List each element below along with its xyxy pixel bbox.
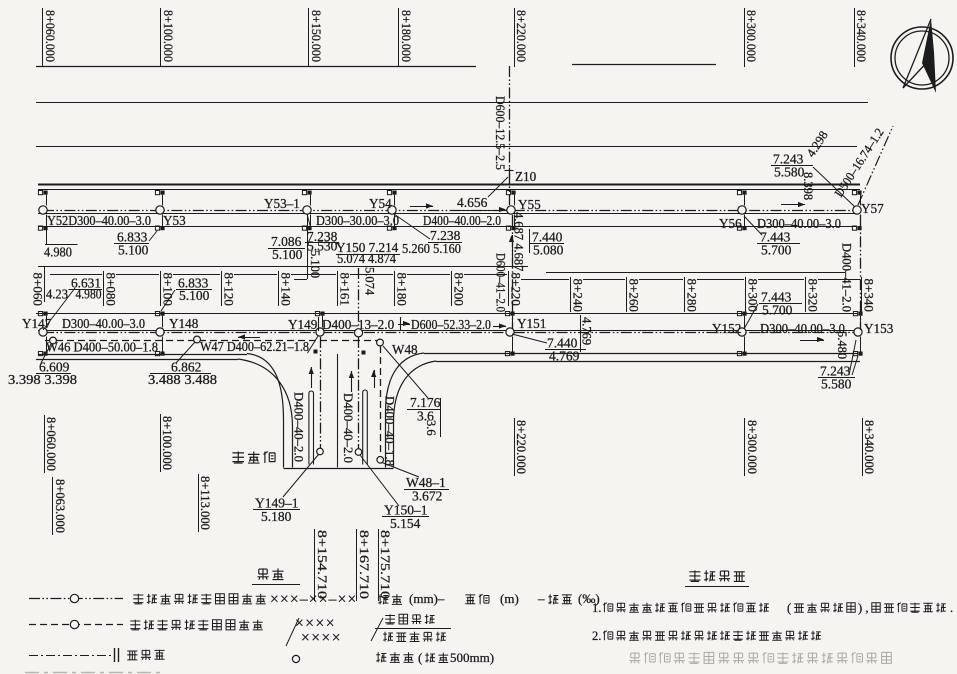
svg-text:D400–41–2.0: D400–41–2.0 <box>840 243 854 312</box>
svg-text:8+280: 8+280 <box>684 279 699 312</box>
svg-text:8+340: 8+340 <box>861 279 876 312</box>
svg-text:5.100: 5.100 <box>118 243 149 258</box>
svg-text:8+220: 8+220 <box>508 273 523 306</box>
svg-text:W46 D400–50.00–1.8: W46 D400–50.00–1.8 <box>46 340 158 355</box>
svg-text:4.23: 4.23 <box>46 287 68 302</box>
svg-text:4.769: 4.769 <box>549 349 580 364</box>
svg-text:D400–13–2.0: D400–13–2.0 <box>322 317 395 332</box>
svg-text:8+100.000: 8+100.000 <box>160 416 174 470</box>
svg-text:D400–40–1.8: D400–40–1.8 <box>383 396 397 466</box>
svg-text:8+113.000: 8+113.000 <box>198 476 212 530</box>
svg-text:8+300.000: 8+300.000 <box>744 10 758 62</box>
svg-text:8+240: 8+240 <box>570 279 585 312</box>
svg-text:3.398 3.398: 3.398 3.398 <box>8 372 77 387</box>
svg-text:4.656: 4.656 <box>457 195 488 210</box>
svg-text:8+340.000: 8+340.000 <box>854 10 868 62</box>
svg-text:Y147: Y147 <box>22 316 52 331</box>
svg-text:8+100.000: 8+100.000 <box>161 10 175 62</box>
svg-text:8+060: 8+060 <box>30 273 45 306</box>
svg-text:5.154: 5.154 <box>390 516 421 531</box>
svg-text:8+220.000: 8+220.000 <box>514 420 528 474</box>
svg-text:×××–××–××: ×××–××–×× <box>270 591 358 608</box>
svg-text:D600–41–2.0: D600–41–2.0 <box>494 253 508 312</box>
svg-text:8+180.000: 8+180.000 <box>399 10 413 62</box>
svg-text:3.6: 3.6 <box>424 420 438 436</box>
svg-text:8+161: 8+161 <box>337 273 352 306</box>
svg-text:8+320: 8+320 <box>805 279 820 312</box>
svg-text:(m): (m) <box>500 591 519 606</box>
svg-text:5.080: 5.080 <box>533 243 564 258</box>
svg-text:5.100: 5.100 <box>179 288 210 303</box>
svg-text:Y52D300–40.00–3.0: Y52D300–40.00–3.0 <box>47 213 151 228</box>
svg-text:8+180: 8+180 <box>394 273 409 306</box>
svg-text:8+150.000: 8+150.000 <box>309 10 323 62</box>
svg-text:8+200: 8+200 <box>451 273 466 306</box>
svg-text:Y53–1: Y53–1 <box>264 196 300 211</box>
svg-text:8+167.710: 8+167.710 <box>357 530 371 599</box>
svg-text:Y148: Y148 <box>169 316 199 331</box>
svg-text:5.580: 5.580 <box>774 165 805 180</box>
svg-text:5.100: 5.100 <box>272 247 303 262</box>
svg-text:8+060.000: 8+060.000 <box>43 10 57 62</box>
svg-text:8+220.000: 8+220.000 <box>514 10 528 62</box>
svg-text:8+154.710: 8+154.710 <box>315 530 329 599</box>
svg-text:Y53: Y53 <box>163 213 186 228</box>
svg-text:W47 D400–62.21–1.8: W47 D400–62.21–1.8 <box>200 339 309 354</box>
svg-text:D300–30.00–3.0: D300–30.00–3.0 <box>316 213 399 228</box>
svg-text:Y57: Y57 <box>861 201 884 216</box>
svg-text:) ,: ) , <box>858 601 869 615</box>
svg-text:××××: ×××× <box>301 630 342 647</box>
svg-text:8+340.000: 8+340.000 <box>862 420 876 474</box>
svg-text:5.700: 5.700 <box>762 303 793 318</box>
svg-text:5.260 5.160: 5.260 5.160 <box>402 241 461 256</box>
svg-text:D600–52.33–2.0: D600–52.33–2.0 <box>411 317 491 332</box>
svg-text:.: . <box>950 601 953 615</box>
svg-text:5.074: 5.074 <box>363 267 377 296</box>
svg-text:8+260: 8+260 <box>626 279 641 312</box>
svg-text:Y151: Y151 <box>517 316 546 331</box>
svg-text:D400–40–2.0: D400–40–2.0 <box>341 393 355 463</box>
svg-text:Y55: Y55 <box>518 197 541 212</box>
svg-text:4.980: 4.980 <box>76 287 102 302</box>
svg-text:4.687 4.687: 4.687 4.687 <box>512 212 526 271</box>
svg-text:D300–40.00–3.0: D300–40.00–3.0 <box>760 321 845 336</box>
svg-text:4.980: 4.980 <box>44 245 72 260</box>
svg-text:D600–12.5–2.5: D600–12.5–2.5 <box>493 96 507 170</box>
svg-text:8+140: 8+140 <box>278 273 293 306</box>
svg-text:Y149: Y149 <box>288 317 318 332</box>
svg-text:2.: 2. <box>592 629 601 643</box>
svg-text:8+300.000: 8+300.000 <box>745 420 759 474</box>
svg-text:4.769: 4.769 <box>580 317 594 345</box>
svg-text:D300–40.00–3.0: D300–40.00–3.0 <box>62 316 145 331</box>
svg-text:3.672: 3.672 <box>412 489 442 504</box>
svg-text:5.100: 5.100 <box>308 250 322 278</box>
svg-text:(mm)–: (mm)– <box>409 591 445 606</box>
svg-text:5.700: 5.700 <box>761 243 792 258</box>
svg-text:Y56: Y56 <box>719 216 742 231</box>
svg-text:1.: 1. <box>592 601 601 615</box>
svg-text:8+120: 8+120 <box>221 273 236 306</box>
svg-text:8+063.000: 8+063.000 <box>53 479 67 533</box>
svg-text:8+300: 8+300 <box>745 279 760 312</box>
svg-text:3.488 3.488: 3.488 3.488 <box>148 372 217 387</box>
svg-text:Y153: Y153 <box>864 321 894 336</box>
svg-text:D400–40–2.0: D400–40–2.0 <box>292 392 306 462</box>
svg-text:D400–40.00–2.0: D400–40.00–2.0 <box>423 213 501 228</box>
svg-text:8+175.710: 8+175.710 <box>378 530 392 599</box>
svg-text:5.480: 5.480 <box>835 331 849 359</box>
svg-text:8+060.000: 8+060.000 <box>44 417 58 471</box>
svg-text:8.398: 8.398 <box>801 172 815 200</box>
svg-text:8+080: 8+080 <box>103 273 118 306</box>
svg-text:–: – <box>537 591 545 606</box>
svg-text:(: ( <box>418 650 422 665</box>
svg-text:(: ( <box>787 601 791 615</box>
svg-text:5.074 4.874: 5.074 4.874 <box>337 251 396 266</box>
svg-text:Y152: Y152 <box>712 321 741 336</box>
svg-text:Y54: Y54 <box>369 196 392 211</box>
svg-text:500mm): 500mm) <box>450 650 494 665</box>
svg-text:5.580: 5.580 <box>821 377 852 392</box>
svg-text:5.530: 5.530 <box>307 239 338 254</box>
svg-text:5.180: 5.180 <box>261 509 292 524</box>
svg-text:Z10: Z10 <box>515 169 537 184</box>
